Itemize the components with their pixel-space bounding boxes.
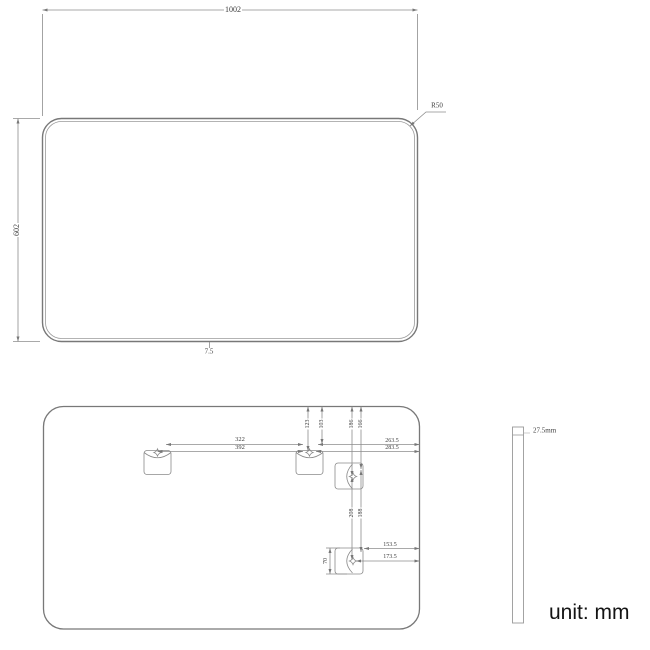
keyhole-icon	[154, 449, 161, 456]
keyhole-icon	[349, 473, 356, 480]
side-view-profile	[513, 427, 524, 623]
front-view-outline	[43, 119, 418, 342]
hanger-height-dimension	[326, 548, 347, 574]
dim-label-bottom-edge: 7.5	[205, 349, 214, 356]
dim-label-width: 1002	[224, 6, 242, 14]
dim-label-thickness: 27.5mm	[533, 428, 556, 435]
dim-label-corner-radius: R50	[431, 103, 443, 110]
hanger-bracket-right-upper	[335, 463, 363, 489]
dim-label-hanger-span-inner: 322	[235, 437, 245, 444]
dim-label-bottom-right-offset-min: 153.5	[383, 542, 397, 548]
side-view	[513, 427, 531, 623]
dim-label-bottom-right-offset-max: 173.5	[383, 554, 397, 560]
radius-leader	[410, 112, 446, 126]
front-view	[13, 10, 446, 348]
keyhole-icon	[306, 449, 313, 456]
unit-note: unit: mm	[549, 602, 630, 623]
width-dimension	[43, 10, 418, 116]
hanger-bracket-top-left	[144, 449, 171, 475]
dim-label-height: 602	[13, 223, 21, 237]
dim-label-hanger-height: 70	[323, 557, 329, 565]
front-view-inner-line	[46, 122, 415, 339]
dim-label-side-top-offset-max: 186	[349, 419, 355, 430]
dim-label-side-span-min: 188	[358, 508, 364, 519]
dim-label-top-offset-max: 123	[305, 419, 311, 430]
dim-label-side-span-max: 208	[349, 508, 355, 519]
drawing-linework	[0, 0, 650, 650]
hanger-bracket-top-center	[296, 449, 323, 475]
keyhole-icon	[349, 557, 356, 564]
dim-label-top-offset-min: 103	[319, 419, 325, 430]
technical-drawing: 1002 602 R50 7.5 322 392 123 103 263.5 2…	[0, 0, 650, 650]
dim-label-side-top-offset-min: 166	[358, 419, 364, 430]
dim-label-right-offset-min: 263.5	[385, 438, 399, 444]
dim-label-right-offset-max: 283.5	[385, 445, 399, 451]
dim-label-hanger-span-outer: 392	[235, 445, 245, 452]
